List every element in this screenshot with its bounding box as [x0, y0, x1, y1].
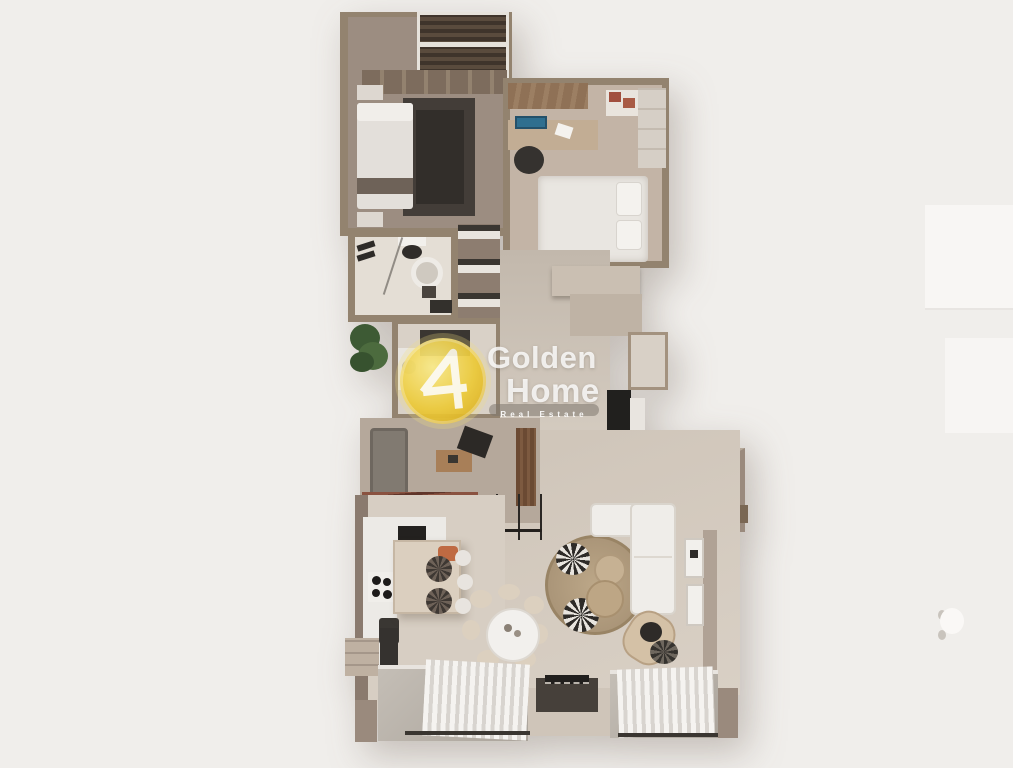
second-bed-pillow — [616, 220, 642, 250]
frame-artwork — [690, 550, 698, 558]
apartment-floorplan — [0, 0, 1013, 768]
poster-red — [609, 92, 621, 102]
cooktop-burner — [372, 576, 381, 585]
balcony-mullion — [417, 42, 509, 47]
second-bed-pillow — [616, 182, 642, 216]
window-rail — [618, 733, 718, 737]
window-rail — [405, 731, 530, 735]
washbasin — [411, 257, 443, 289]
outdoor-sofa — [370, 428, 408, 500]
bar-stool — [455, 598, 471, 614]
bar-stool — [455, 550, 471, 566]
table-decor — [448, 455, 458, 463]
master-bed-throw — [357, 178, 413, 194]
nightstand — [357, 85, 383, 100]
bar-stool — [457, 574, 473, 590]
curtains-left — [422, 659, 530, 740]
cooktop-burner — [383, 578, 391, 586]
dishwasher — [380, 628, 398, 668]
sofa-main — [630, 503, 676, 615]
sofa-cushion-line — [634, 556, 672, 558]
background-patch — [945, 338, 1013, 433]
rattan-pendant-light — [426, 556, 452, 582]
dining-chair — [462, 620, 480, 640]
coffee-table — [586, 580, 624, 618]
table-centerpiece — [504, 624, 512, 632]
dark-pouf — [650, 640, 678, 664]
dining-chair — [498, 584, 520, 600]
bedroom-rug-inner — [416, 110, 464, 204]
curtains-right — [617, 666, 715, 737]
real-estate-listing-photo: { "scene": { "description": "3D rendered… — [0, 0, 1013, 768]
wall-frame — [686, 584, 704, 626]
living-right-wall — [703, 530, 717, 682]
niche-cabinet — [628, 332, 668, 390]
shelf-column — [458, 224, 500, 319]
dark-cushion — [640, 622, 662, 642]
bedroom-shelving — [362, 70, 507, 94]
background-patch — [925, 205, 1013, 310]
wardrobe — [638, 88, 666, 168]
office-chair — [514, 146, 544, 174]
doormat-label — [545, 675, 589, 684]
desk-monitor — [515, 116, 547, 129]
hall-wardrobe-lower — [570, 294, 642, 336]
washing-machine-door — [402, 360, 416, 374]
potted-plant — [350, 352, 374, 372]
hall-wardrobe-upper — [552, 266, 640, 296]
cork-wall — [508, 83, 588, 109]
poster-red — [623, 98, 635, 108]
dining-chair — [470, 590, 492, 608]
wall-stub — [718, 688, 738, 738]
stray-object — [940, 608, 964, 634]
rattan-pendant-light — [426, 588, 452, 614]
toilet — [402, 245, 422, 259]
utility-counter — [420, 330, 470, 356]
bath-stool — [422, 286, 436, 298]
dining-table — [486, 608, 540, 662]
master-bed-pillows — [357, 103, 413, 121]
boho-pouf — [556, 543, 590, 575]
wall-frame — [684, 538, 704, 578]
table-centerpiece — [514, 630, 521, 637]
bath-mat — [430, 300, 452, 313]
kitchen-steps — [345, 638, 379, 676]
nightstand — [357, 212, 383, 227]
cooktop-burner — [372, 589, 380, 597]
cooktop-burner — [383, 590, 392, 599]
wall-stub — [355, 700, 377, 742]
